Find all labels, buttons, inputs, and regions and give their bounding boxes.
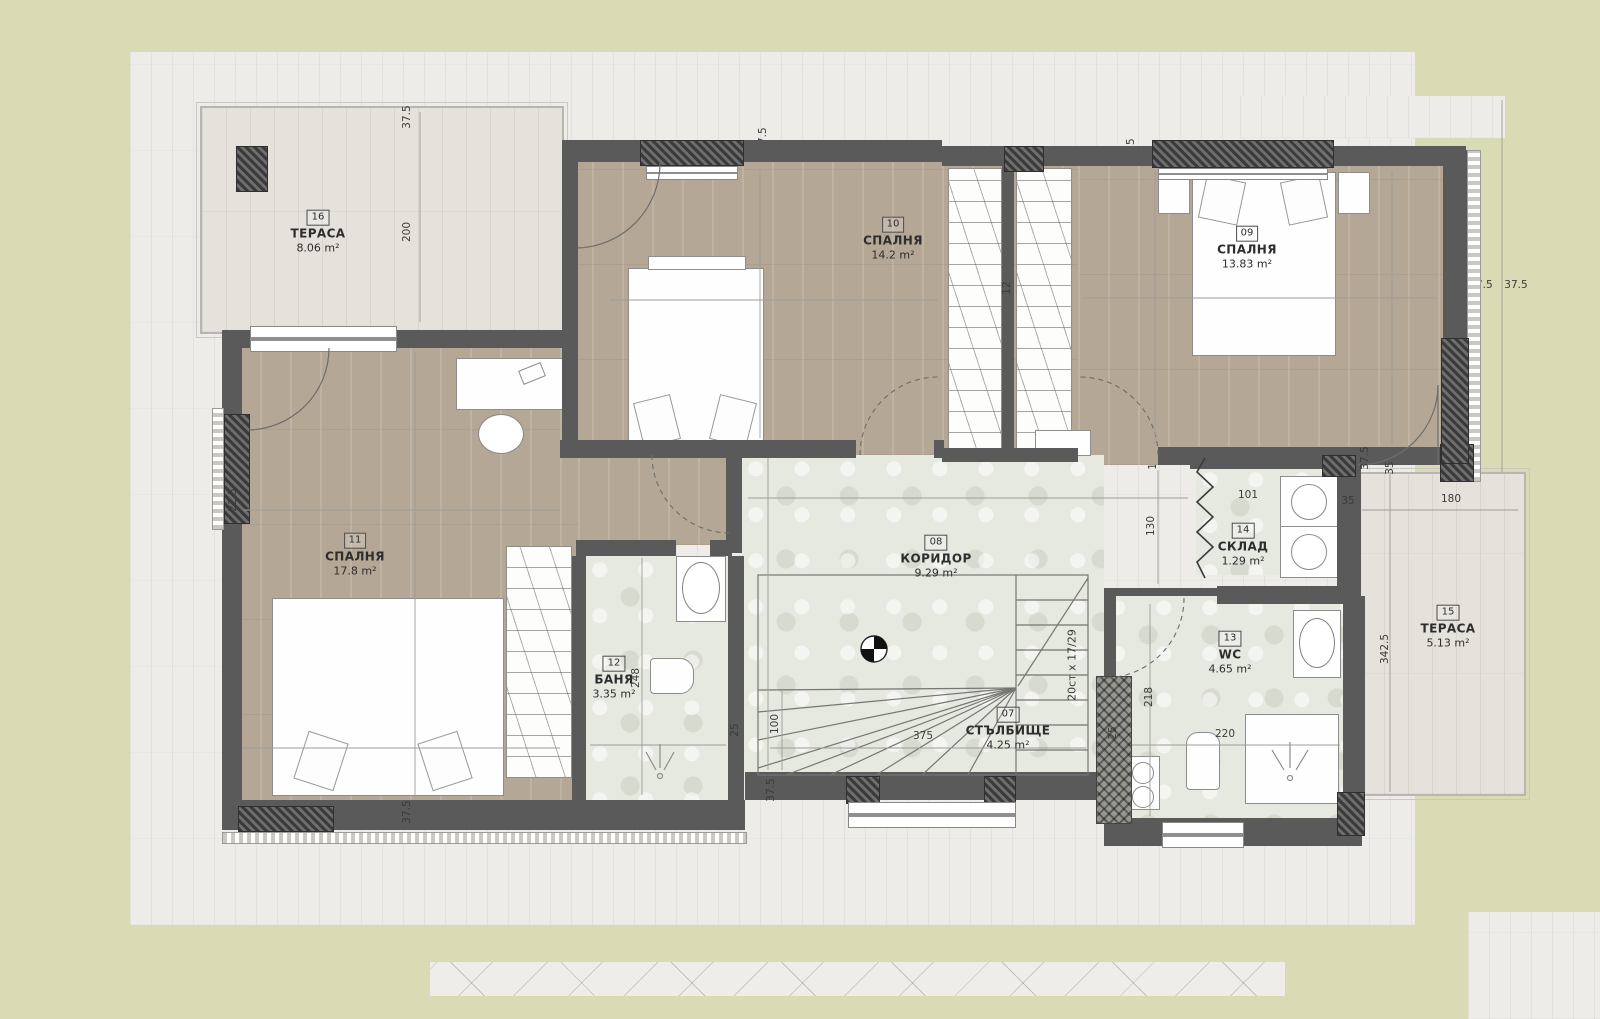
dim-label: 37.5	[401, 800, 413, 823]
wall-bedroom10-south-a	[560, 440, 856, 458]
room-area: 4.25 m²	[966, 738, 1051, 753]
dim-label: 35	[1341, 495, 1354, 507]
terrace-16-floor	[200, 106, 564, 334]
room-name: СПАЛНЯ	[325, 548, 385, 564]
room-name: СПАЛНЯ	[863, 232, 923, 248]
dim-label: 200	[401, 222, 413, 242]
terrace-vent-shaft	[236, 146, 268, 192]
room-number: 07	[997, 707, 1020, 723]
bedroom-11-wardrobe	[506, 546, 572, 778]
sill-south-left	[222, 832, 747, 844]
room-label-stairs07: 07 СТЪЛБИЩЕ 4.25 m²	[966, 701, 1051, 754]
room-label-storage14: 14 СКЛАД 1.29 m²	[1218, 517, 1269, 570]
dim-label: 22.5	[227, 488, 239, 511]
room-label-terrace16: 16 ТЕРАСА 8.06 m²	[291, 204, 346, 257]
wc-unit-knob	[1132, 762, 1154, 784]
dim-label: 100	[769, 714, 781, 734]
window-staircase-south	[848, 802, 1016, 828]
room-area: 14.2 m²	[863, 248, 923, 263]
wc-unit-knob	[1132, 786, 1154, 808]
bed-headboard-bedroom10	[648, 256, 746, 270]
dim-label: 25	[1107, 726, 1119, 739]
dim-label: 35	[1384, 461, 1396, 474]
wall-west	[222, 330, 242, 812]
room-area: 3.35 m²	[592, 687, 635, 702]
room-number: 09	[1236, 226, 1259, 242]
window-bedroom11-terrace	[250, 326, 397, 352]
wall-wc-north	[1217, 586, 1343, 604]
dim-label: 180	[1441, 493, 1461, 505]
dim-label: 218	[1143, 687, 1155, 707]
room-number: 08	[925, 535, 948, 551]
dim-label: 130	[1145, 516, 1157, 536]
room-area: 5.13 m²	[1421, 636, 1476, 651]
walkway-bottom	[430, 962, 1285, 996]
room-number: 10	[882, 217, 905, 233]
room-label-bedroom10: 10 СПАЛНЯ 14.2 m²	[863, 211, 923, 264]
room-area: 13.83 m²	[1217, 257, 1277, 272]
window-bedroom10-north	[640, 140, 744, 166]
room-area: 8.06 m²	[291, 241, 346, 256]
dim-label: 342.5	[1379, 634, 1391, 664]
room-number: 16	[307, 210, 330, 226]
desk-bedroom11	[456, 358, 566, 410]
bedroom-11-nook-floor	[578, 455, 728, 545]
room-name: СТЪЛБИЩЕ	[966, 722, 1051, 738]
floor-plan-canvas: 16 ТЕРАСА 8.06 m² 10 СПАЛНЯ 14.2 m² 09 С…	[0, 0, 1600, 1019]
room-name: БАНЯ	[592, 671, 635, 687]
window-sill-bedroom09	[1158, 168, 1328, 180]
dim-label: 101	[1238, 489, 1258, 501]
room-number: 11	[344, 533, 367, 549]
wall-bath-west	[572, 556, 586, 802]
room-name: WC	[1208, 646, 1251, 662]
wall-bedroom10-west	[562, 150, 578, 458]
dim-label: 37.5	[1359, 446, 1371, 469]
wc-toilet	[1186, 732, 1220, 790]
window-bedroom09-north	[1152, 140, 1334, 168]
wall-bedroom10-north	[562, 140, 942, 162]
desk-chair	[478, 414, 524, 454]
room-number: 12	[603, 656, 626, 672]
room-area: 17.8 m²	[325, 564, 385, 579]
room-area: 4.65 m²	[1208, 662, 1251, 677]
dim-label: 375	[913, 730, 933, 742]
nightstand-right	[1338, 172, 1370, 214]
room-name: СПАЛНЯ	[1217, 241, 1277, 257]
wall-hatch-wc-corner	[1337, 792, 1365, 836]
room-area: 1.29 m²	[1218, 554, 1269, 569]
wall-hatch-closet-top	[1004, 146, 1044, 172]
window-frame-east	[1467, 150, 1481, 482]
wall-closet-divider	[1002, 162, 1014, 452]
dim-label: 37.5	[1504, 279, 1527, 291]
room-label-bath12: 12 БАНЯ 3.35 m²	[592, 650, 635, 703]
room-label-wc13: 13 WC 4.65 m²	[1208, 625, 1251, 678]
room-name: СКЛАД	[1218, 538, 1269, 554]
dim-label: 25	[729, 723, 741, 736]
room-name: ТЕРАСА	[1421, 620, 1476, 636]
window-frame-west	[212, 408, 224, 530]
room-number: 14	[1232, 523, 1255, 539]
wall-hatch-south-left	[238, 806, 334, 832]
room-name: КОРИДОР	[900, 550, 971, 566]
wall-bath-east	[728, 556, 744, 800]
room-label-bedroom09: 09 СПАЛНЯ 13.83 m²	[1217, 220, 1277, 273]
wall-corridor-south	[745, 772, 1109, 800]
wardrobe-closet-left	[948, 168, 1002, 454]
wardrobe-closet-right	[1016, 168, 1072, 454]
dim-label: 220	[1215, 728, 1235, 740]
room-number: 15	[1437, 605, 1460, 621]
stairs-spec: 20ст x 17/29	[1066, 629, 1079, 701]
window-jamb-right	[984, 776, 1016, 804]
wall-wc-north-thin	[1104, 588, 1217, 596]
window-sill-bedroom10	[646, 166, 738, 180]
window-bedroom09-east	[1441, 338, 1469, 464]
room-number: 13	[1219, 631, 1242, 647]
room-name: ТЕРАСА	[291, 225, 346, 241]
wall-nook-corridor	[726, 455, 742, 553]
bath-toilet	[650, 658, 694, 694]
window-jamb-left	[846, 776, 880, 804]
wall-wc-west-thin	[1104, 594, 1116, 680]
wc-sink	[1299, 618, 1335, 668]
paving-bottom-right	[1468, 912, 1600, 1019]
wc-shower	[1245, 714, 1339, 804]
wall-wc-east	[1343, 596, 1365, 796]
room-label-corridor08: 08 КОРИДОР 9.29 m²	[900, 529, 971, 582]
window-wc-south	[1162, 822, 1244, 848]
wall-storage-east	[1337, 466, 1361, 596]
wall-bath-north-a	[576, 540, 676, 556]
room-area: 9.29 m²	[900, 566, 971, 581]
dim-label: 37.5	[401, 105, 413, 128]
wall-hatch-storage	[1322, 455, 1356, 477]
room-label-bedroom11: 11 СПАЛНЯ 17.8 m²	[325, 527, 385, 580]
paving-top-right	[1240, 96, 1505, 138]
room-label-terrace15: 15 ТЕРАСА 5.13 m²	[1421, 599, 1476, 652]
dim-label: 37.5	[765, 778, 777, 801]
washer-drum-bottom	[1291, 534, 1327, 570]
wall-wc-west-hatched	[1096, 676, 1132, 824]
washer-drum-top	[1291, 484, 1327, 520]
bath-sink	[682, 562, 720, 614]
dim-label: 12	[1001, 281, 1013, 294]
